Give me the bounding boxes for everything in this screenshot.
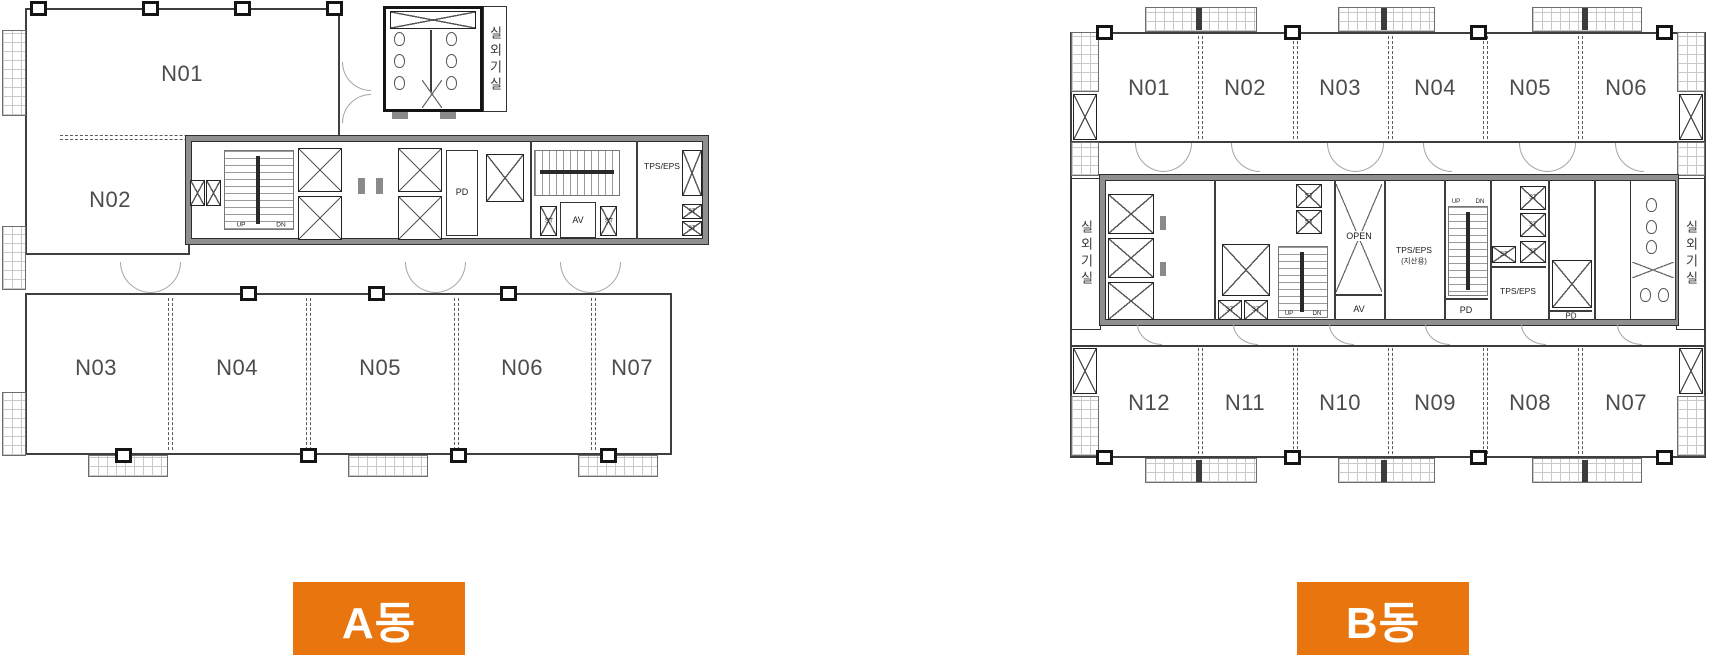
column [1096, 25, 1113, 40]
stair-rail [1300, 252, 1304, 312]
core-partition [1384, 180, 1386, 320]
unit-divider [1388, 36, 1393, 139]
toilet-fixture [1640, 288, 1651, 302]
stair-up-label: UP [1285, 311, 1293, 317]
stair-up-label: UP [1452, 199, 1460, 205]
unit-label: N04 [1414, 75, 1456, 101]
core-partition [1492, 266, 1546, 268]
st-label: ST [1252, 307, 1260, 313]
toilet-fixture [1646, 198, 1657, 212]
av-label: AV [1353, 304, 1364, 314]
balcony-door-post [1196, 460, 1202, 482]
unit-divider [1388, 348, 1393, 454]
pd-label: PD [1460, 305, 1473, 315]
floorplan-canvas: N01 N02 실외기실 UP DN PD [0, 0, 1709, 659]
unit-label: N08 [1509, 390, 1551, 416]
st-label: ST [1529, 195, 1537, 201]
unit-label: N06 [1605, 75, 1647, 101]
core-partition [1594, 180, 1596, 320]
elevator-icon [1108, 238, 1154, 278]
balcony-door-post [1381, 8, 1387, 30]
elevator-icon [1679, 348, 1703, 394]
st-label: ST [1226, 307, 1234, 313]
door-jamb [1160, 262, 1166, 276]
building-b-badge-label: B동 [1346, 587, 1420, 651]
tps-eps-label: TPS/EPS [1396, 245, 1432, 255]
unit-label: N09 [1414, 390, 1456, 416]
unit-divider [1578, 36, 1583, 139]
column [1656, 25, 1673, 40]
unit-label: N03 [1319, 75, 1361, 101]
elevator-icon [1222, 244, 1270, 296]
balcony-door-post [1196, 8, 1202, 30]
toilet-fixture [1658, 288, 1669, 302]
tps-eps-note-label: (지산용) [1401, 256, 1427, 267]
unit-divider [1293, 36, 1298, 139]
unit-label: N01 [1128, 75, 1170, 101]
st-label: ST [1305, 219, 1313, 226]
balcony-door-post [1381, 460, 1387, 482]
unit-divider [1293, 348, 1298, 454]
unit-label: N11 [1225, 390, 1265, 416]
column [1284, 25, 1301, 40]
elevator-icon [1073, 94, 1097, 140]
core-partition [1548, 180, 1550, 320]
unit-label: N02 [1224, 75, 1266, 101]
core-partition [1446, 298, 1488, 300]
stair-rail [1466, 212, 1470, 290]
elevator-icon [1108, 194, 1154, 234]
unit-label: N12 [1128, 390, 1170, 416]
stair-dn-label: DN [1476, 199, 1485, 205]
st-label: ST [1529, 249, 1537, 255]
elevator-icon [1679, 94, 1703, 140]
column [1656, 450, 1673, 465]
stair-dn-label: DN [1313, 311, 1322, 317]
unit-divider [1483, 348, 1488, 454]
building-b-badge: B동 [1297, 582, 1469, 655]
column [1284, 450, 1301, 465]
elevator-icon [1108, 282, 1154, 320]
core-partition [1214, 180, 1216, 320]
balcony-hatch [1677, 396, 1705, 456]
unit-divider [1483, 36, 1488, 139]
st-label: ST [1529, 222, 1537, 228]
balcony-hatch [1071, 142, 1099, 176]
outdoor-room-label: 실외기실 [1682, 220, 1701, 288]
balcony-hatch [1677, 32, 1705, 92]
core-partition [1336, 294, 1382, 296]
door-jamb [1160, 216, 1166, 230]
unit-label: N05 [1509, 75, 1551, 101]
balcony-hatch [1677, 142, 1705, 176]
balcony-hatch [1071, 32, 1099, 92]
column [1470, 25, 1487, 40]
st-label: ST [1305, 193, 1313, 200]
toilet-fixture [1646, 220, 1657, 234]
outdoor-room-label: 실외기실 [1077, 220, 1096, 288]
toilet-fixture [1646, 240, 1657, 254]
balcony-hatch [1071, 396, 1099, 456]
unit-label: N10 [1319, 390, 1361, 416]
balcony-door-post [1582, 460, 1588, 482]
balcony-door-post [1582, 8, 1588, 30]
toilet-door-icon [1632, 262, 1674, 278]
emergency-elevator-icon [1552, 260, 1592, 308]
elevator-icon [1073, 348, 1097, 394]
unit-divider [1198, 348, 1203, 454]
pd-label: PD [1565, 312, 1576, 321]
tps-eps-label: TPS/EPS [1500, 286, 1536, 296]
st-label: ST [1500, 252, 1508, 258]
corridor-wall [1072, 345, 1704, 347]
building-a-badge-label: A동 [342, 587, 416, 651]
column [1096, 450, 1113, 465]
open-label: OPEN [1345, 231, 1373, 241]
unit-label: N07 [1605, 390, 1647, 416]
unit-divider [1198, 36, 1203, 139]
column [1470, 450, 1487, 465]
building-a-badge: A동 [293, 582, 465, 655]
plan-b: N01 N02 N03 N04 N05 N06 실외기실 실외기실 [0, 0, 1709, 500]
unit-divider [1578, 348, 1583, 454]
